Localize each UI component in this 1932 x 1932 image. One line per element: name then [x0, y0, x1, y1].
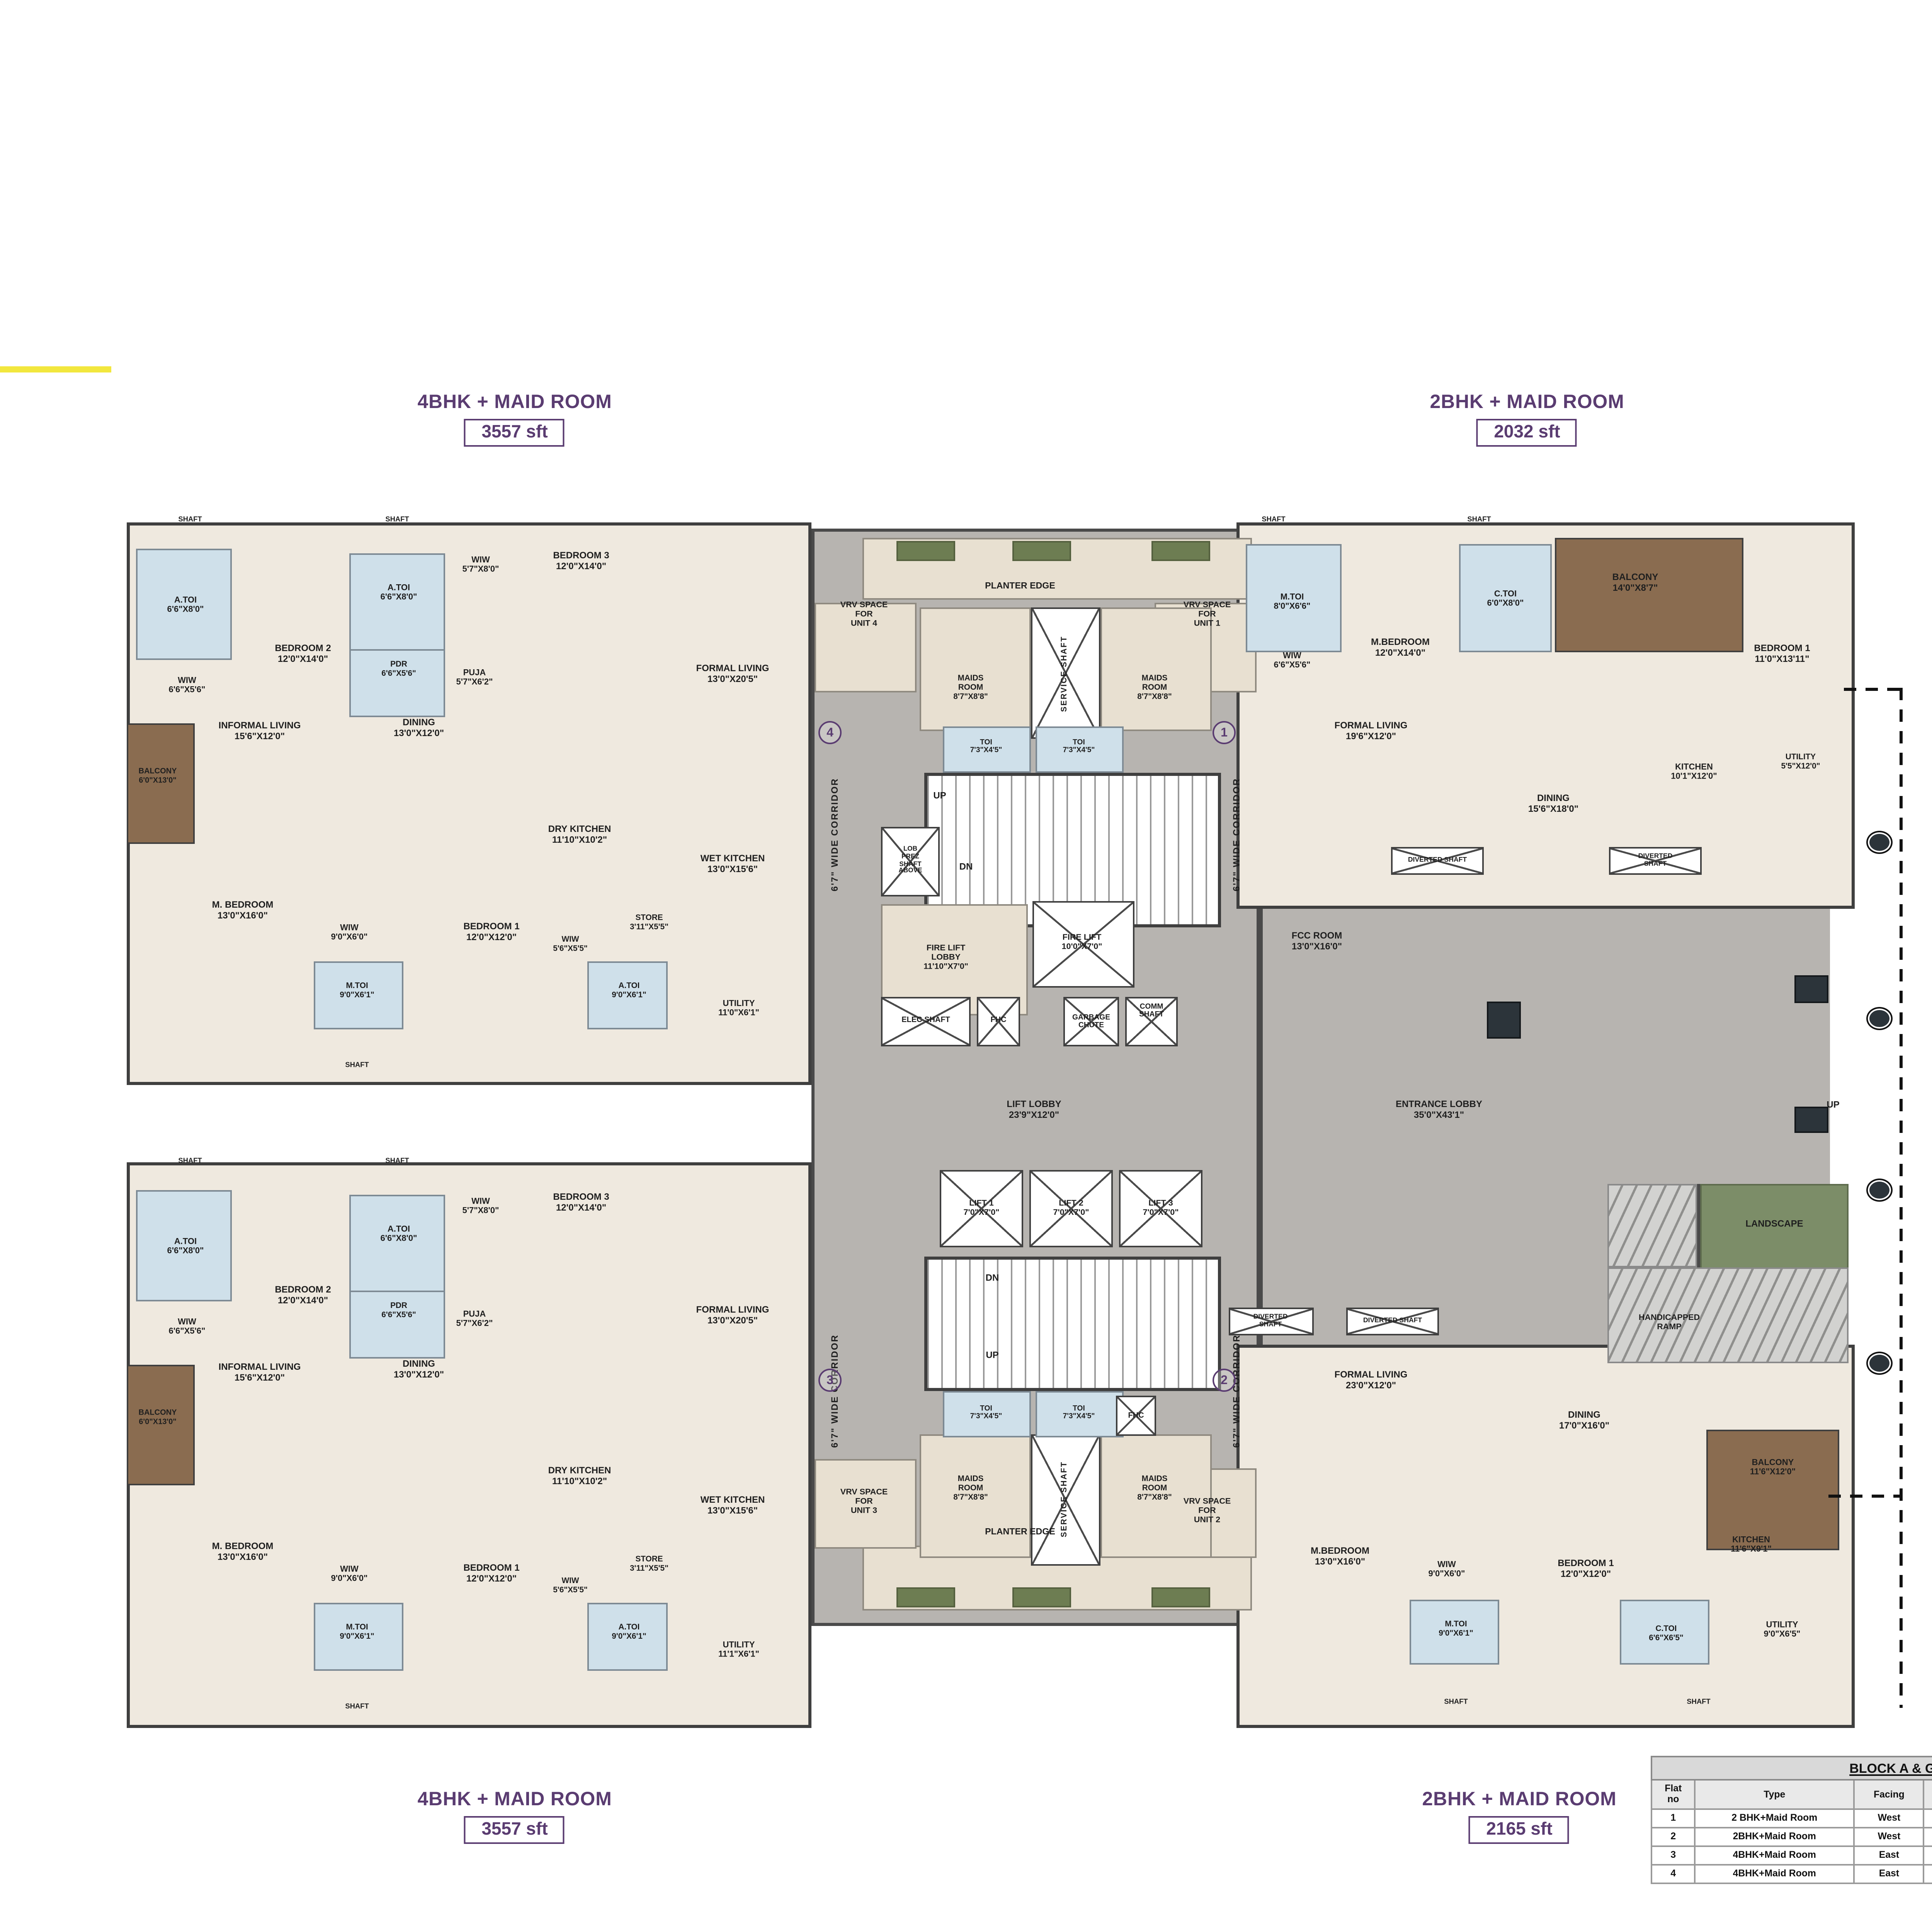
table-cell: 2 BHK+Maid Room [1695, 1809, 1854, 1828]
unit-area-badge: 2165 sft [1469, 1816, 1569, 1844]
room-label: VRV SPACE FOR UNIT 4 [840, 601, 888, 629]
room-label: MAIDS ROOM8'7"X8'8" [953, 676, 988, 703]
bollard-marker [1866, 1179, 1893, 1202]
room-label: ELEC SHAFT [901, 1017, 950, 1026]
unit-4bhk-bottom: 4BHK + MAID ROOM3557 sft [417, 1788, 612, 1844]
room-label: VRV SPACE FOR UNIT 1 [1184, 601, 1231, 629]
room-label: FORMAL LIVING19'6"X12'0" [1335, 722, 1408, 743]
room-label: M. BEDROOM13'0"X16'0" [212, 901, 274, 922]
room-label: VRV SPACE FOR UNIT 3 [840, 1488, 888, 1517]
room-label: LIFT 17'0"X7'0" [963, 1199, 999, 1218]
unit-area-badge: 3557 sft [464, 419, 565, 447]
room-label: A.TOI9'0"X6'1" [612, 1625, 646, 1643]
planter-green [1012, 1587, 1071, 1607]
planter-green [1151, 541, 1210, 561]
stairwell [924, 1257, 1221, 1391]
room-label: WET KITCHEN13'0"X15'6" [701, 855, 765, 876]
room-label: BALCONY6'0"X13'0" [139, 769, 177, 786]
table-row: 34BHK+Maid RoomEast249574673557 [1651, 1846, 1932, 1865]
room-label: DIVERTED SHAFT [1363, 1318, 1422, 1325]
room-label: TOI7'3"X4'5" [970, 740, 1002, 757]
unit-2bhk-bottom: 2BHK + MAID ROOM2165 sft [1422, 1788, 1616, 1844]
room-label: FCC ROOM13'0"X16'0" [1292, 932, 1342, 953]
room-label: PLANTER EDGE [985, 1528, 1055, 1538]
table-cell: 2496 [1924, 1865, 1932, 1883]
room-label: PUJA5'7"X6'2" [456, 1310, 493, 1329]
table-cell: West [1854, 1828, 1924, 1846]
room-label: FHC [990, 1017, 1006, 1026]
room-label: SHAFT [1262, 515, 1285, 524]
table-cell: 4 [1651, 1865, 1695, 1883]
table-cell: 4BHK+Maid Room [1695, 1865, 1854, 1883]
room-label: FIRE LIFT LOBBY11'10"X7'0" [923, 944, 968, 973]
balcony-zone [1706, 1430, 1839, 1550]
table-header-row: Flat noTypeFacingCarpet Area (sft)Balcon… [1651, 1780, 1932, 1809]
room-label: ENTRANCE LOBBY35'0"X43'1" [1396, 1101, 1482, 1122]
unit-number-marker: 2 [1213, 1369, 1236, 1392]
unit-type-label: 4BHK + MAID ROOM [417, 1788, 612, 1810]
room-label: BEDROOM 312'0"X14'0" [553, 1194, 609, 1214]
room-label: M.TOI8'0"X6'6" [1274, 593, 1311, 612]
room-label: KITCHEN10'1"X12'0" [1671, 763, 1717, 782]
room-label: SHAFT [1687, 1698, 1710, 1706]
room-label: DINING13'0"X12'0" [394, 1361, 444, 1381]
room-label: SHAFT [178, 1157, 202, 1165]
bath-zone [349, 649, 445, 717]
vertical-label: SERVICE SHAFT [1060, 636, 1070, 712]
property-dash-line [1828, 1495, 1903, 1498]
room-label: FORMAL LIVING13'0"X20'5" [696, 665, 769, 686]
room-label: KITCHEN11'6"X9'1" [1731, 1536, 1772, 1555]
room-label: WET KITCHEN13'0"X15'6" [701, 1497, 765, 1517]
room-label: PDR6'6"X5'6" [381, 662, 416, 680]
room-label: M.TOI9'0"X6'1" [1439, 1622, 1473, 1640]
room-label: LANDSCAPE [1745, 1221, 1803, 1231]
room-label: INFORMAL LIVING15'6"X12'0" [219, 1364, 301, 1384]
room-label: MAIDS ROOM8'7"X8'8" [1137, 1476, 1172, 1503]
table-cell: East [1854, 1846, 1924, 1865]
vertical-label: SERVICE SHAFT [1060, 1461, 1070, 1537]
room-label: DINING17'0"X16'0" [1559, 1412, 1609, 1432]
room-label: BEDROOM 212'0"X14'0" [275, 1286, 331, 1307]
room-label: M.BEDROOM13'0"X16'0" [1311, 1548, 1369, 1568]
room-label: VRV SPACE FOR UNIT 2 [1184, 1498, 1231, 1526]
unit-4bhk-top: 4BHK + MAID ROOM3557 sft [417, 391, 612, 447]
room-label: LOB PREZ SHAFT ABOVE [898, 846, 922, 876]
room-label: M. BEDROOM13'0"X16'0" [212, 1543, 274, 1564]
property-dash-line [1844, 688, 1903, 691]
room-label: DN [959, 864, 973, 874]
vertical-label: 6'7" WIDE CORRIDOR [832, 778, 841, 891]
bath-zone [349, 1291, 445, 1359]
room-label: C.TOI6'0"X8'0" [1487, 590, 1524, 609]
room-label: WIW5'6"X5'5" [553, 1578, 588, 1597]
room-label: BALCONY6'0"X13'0" [139, 1410, 177, 1428]
room-label: UP [933, 793, 946, 803]
unit-number-marker: 3 [818, 1369, 842, 1392]
room-label: INFORMAL LIVING15'6"X12'0" [219, 722, 301, 743]
vertical-label: 6'7" WIDE CORRIDOR [1233, 778, 1243, 891]
room-label: BEDROOM 112'0"X12'0" [1558, 1560, 1614, 1581]
room-label: FORMAL LIVING23'0"X12'0" [1335, 1371, 1408, 1392]
room-label: WIW5'6"X5'5" [553, 937, 588, 955]
maids-room-zone [920, 607, 1031, 731]
table-cell: 1377 [1924, 1828, 1932, 1846]
room-label: DN [986, 1275, 999, 1285]
room-label: BEDROOM 212'0"X14'0" [275, 645, 331, 666]
room-label: TOI7'3"X4'5" [970, 1406, 1002, 1423]
room-label: MAIDS ROOM8'7"X8'8" [1137, 676, 1172, 703]
room-label: BEDROOM 111'0"X13'11" [1754, 645, 1810, 666]
room-label: LIFT 37'0"X7'0" [1143, 1199, 1179, 1218]
room-label: WIW9'0"X6'0" [331, 924, 368, 943]
table-cell: 1 [1651, 1809, 1695, 1828]
room-label: A.TOI6'6"X8'0" [381, 1225, 417, 1244]
table-title: BLOCK A & G – GROUND FLOOR [1651, 1757, 1932, 1780]
room-label: BEDROOM 112'0"X12'0" [463, 1565, 519, 1585]
room-label: WIW9'0"X6'0" [331, 1565, 368, 1584]
room-label: DIVERTED SHAFT [1253, 1314, 1288, 1329]
room-label: WIW9'0"X6'0" [1429, 1561, 1465, 1580]
room-label: DRY KITCHEN11'10"X10'2" [548, 826, 611, 847]
planter-green [1012, 541, 1071, 561]
unit-number-marker: 1 [1213, 721, 1236, 744]
room-label: LIFT 27'0"X7'0" [1053, 1199, 1089, 1218]
room-label: A.TOI9'0"X6'1" [612, 983, 646, 1002]
room-label: MAIDS ROOM8'7"X8'8" [953, 1476, 988, 1503]
unit-type-label: 2BHK + MAID ROOM [1422, 1788, 1616, 1810]
unit-number-marker: 4 [818, 721, 842, 744]
table-row: 44BHK+Maid RoomEast249674673557 [1651, 1865, 1932, 1883]
room-label: SHAFT [345, 1702, 369, 1711]
table-cell: 2495 [1924, 1846, 1932, 1865]
room-label: SHAFT [385, 1157, 409, 1165]
table-cell: West [1854, 1809, 1924, 1828]
room-label: STORE3'11"X5'5" [630, 915, 668, 934]
table-cell: East [1854, 1865, 1924, 1883]
room-label: SHAFT [345, 1061, 369, 1069]
table-row: 22BHK+Maid RoomWest1377138582165 [1651, 1828, 1932, 1846]
room-label: WIW6'6"X5'6" [1274, 652, 1311, 671]
room-label: BEDROOM 112'0"X12'0" [463, 923, 519, 944]
bollard-marker [1866, 1352, 1893, 1375]
table-cell: 4BHK+Maid Room [1695, 1846, 1854, 1865]
room-label: STORE3'11"X5'5" [630, 1557, 668, 1575]
room-label: FIRE LIFT10'0"X7'0" [1061, 934, 1102, 952]
table-header-cell: Carpet Area (sft) [1924, 1780, 1932, 1809]
room-label: COMM SHAFT [1139, 1004, 1164, 1021]
room-label: DINING15'6"X18'0" [1528, 795, 1578, 816]
table-cell: 2BHK+Maid Room [1695, 1828, 1854, 1846]
unit-area-badge: 3557 sft [464, 1816, 565, 1844]
lobby-right-wing [1691, 866, 1830, 1184]
room-label: SHAFT [385, 515, 409, 524]
unit-type-label: 2BHK + MAID ROOM [1430, 391, 1624, 413]
room-label: PDR6'6"X5'6" [381, 1303, 416, 1321]
column [1487, 1002, 1521, 1039]
unit-area-badge: 2032 sft [1477, 419, 1577, 447]
table-header-cell: Type [1695, 1780, 1854, 1809]
unit-type-label: 4BHK + MAID ROOM [417, 391, 612, 413]
room-label: UP [1827, 1102, 1839, 1112]
room-label: DINING13'0"X12'0" [394, 719, 444, 740]
table-cell: 3 [1651, 1846, 1695, 1865]
room-label: M.TOI9'0"X6'1" [340, 983, 374, 1002]
planter-green [1151, 1587, 1210, 1607]
room-label: GARBAGE CHUTE [1072, 1015, 1110, 1032]
planter-green [896, 541, 955, 561]
property-dash-line [1900, 688, 1903, 1708]
room-label: HANDICAPPED RAMP [1639, 1314, 1700, 1332]
room-label: DRY KITCHEN11'10"X10'2" [548, 1467, 611, 1488]
room-label: BALCONY14'0"X8'7" [1612, 574, 1658, 595]
room-label: UTILITY11'1"X6'1" [718, 1641, 759, 1660]
room-label: DIVERTED SHAFT [1638, 853, 1673, 868]
room-label: LIFT LOBBY23'9"X12'0" [1007, 1101, 1061, 1122]
room-label: SHAFT [178, 515, 202, 524]
room-label: PUJA5'7"X6'2" [456, 669, 493, 688]
room-label: A.TOI6'6"X8'0" [167, 596, 204, 615]
column [1794, 975, 1828, 1003]
room-label: WIW5'7"X8'0" [463, 1197, 499, 1216]
room-label: DIVERTED SHAFT [1408, 857, 1467, 865]
room-label: FORMAL LIVING13'0"X20'5" [696, 1306, 769, 1327]
bollard-marker [1866, 1007, 1893, 1030]
column [1794, 1107, 1828, 1133]
planter-green [896, 1587, 955, 1607]
yellow-accent-line [0, 366, 111, 372]
room-label: A.TOI6'6"X8'0" [167, 1238, 204, 1257]
table-cell: 1283 [1924, 1809, 1932, 1828]
room-label: BEDROOM 312'0"X14'0" [553, 552, 609, 573]
room-label: FHC [1128, 1413, 1144, 1422]
room-label: M.BEDROOM12'0"X14'0" [1371, 639, 1430, 660]
room-label: UP [986, 1352, 998, 1362]
room-label: TOI7'3"X4'5" [1063, 1406, 1095, 1423]
table-cell: 2 [1651, 1828, 1695, 1846]
room-label: BALCONY11'6"X12'0" [1750, 1459, 1796, 1478]
unit-2bhk-top: 2BHK + MAID ROOM2032 sft [1430, 391, 1624, 447]
table-row: 12 BHK+Maid RoomWest1283121652032 [1651, 1809, 1932, 1828]
floor-plan-canvas: SHAFTSHAFTA.TOI6'6"X8'0"BEDROOM 212'0"X1… [0, 0, 1932, 1932]
room-label: M.TOI9'0"X6'1" [340, 1625, 374, 1643]
room-label: TOI7'3"X4'5" [1063, 740, 1095, 757]
balcony-zone [1555, 538, 1743, 652]
room-label: WIW5'7"X8'0" [463, 556, 499, 575]
room-label: WIW6'6"X5'6" [169, 677, 206, 696]
area-spec-table: BLOCK A & G – GROUND FLOOR Flat noTypeFa… [1651, 1756, 1932, 1884]
table-header-cell: Facing [1854, 1780, 1924, 1809]
bollard-marker [1866, 831, 1893, 854]
room-label: UTILITY9'0"X6'5" [1764, 1621, 1801, 1640]
room-label: UTILITY5'5"X12'0" [1781, 755, 1820, 773]
vertical-label: 6'7" WIDE CORRIDOR [1233, 1334, 1243, 1448]
room-label: WIW6'6"X5'6" [169, 1318, 206, 1337]
room-label: SHAFT [1467, 515, 1491, 524]
room-label: A.TOI6'6"X8'0" [381, 584, 417, 603]
ramp-zone [1607, 1184, 1697, 1267]
room-label: C.TOI6'6"X6'5" [1649, 1626, 1684, 1645]
room-label: SHAFT [1444, 1698, 1468, 1706]
room-label: PLANTER EDGE [985, 582, 1055, 592]
room-label: UTILITY11'0"X6'1" [718, 1000, 759, 1019]
table-header-cell: Flat no [1651, 1780, 1695, 1809]
